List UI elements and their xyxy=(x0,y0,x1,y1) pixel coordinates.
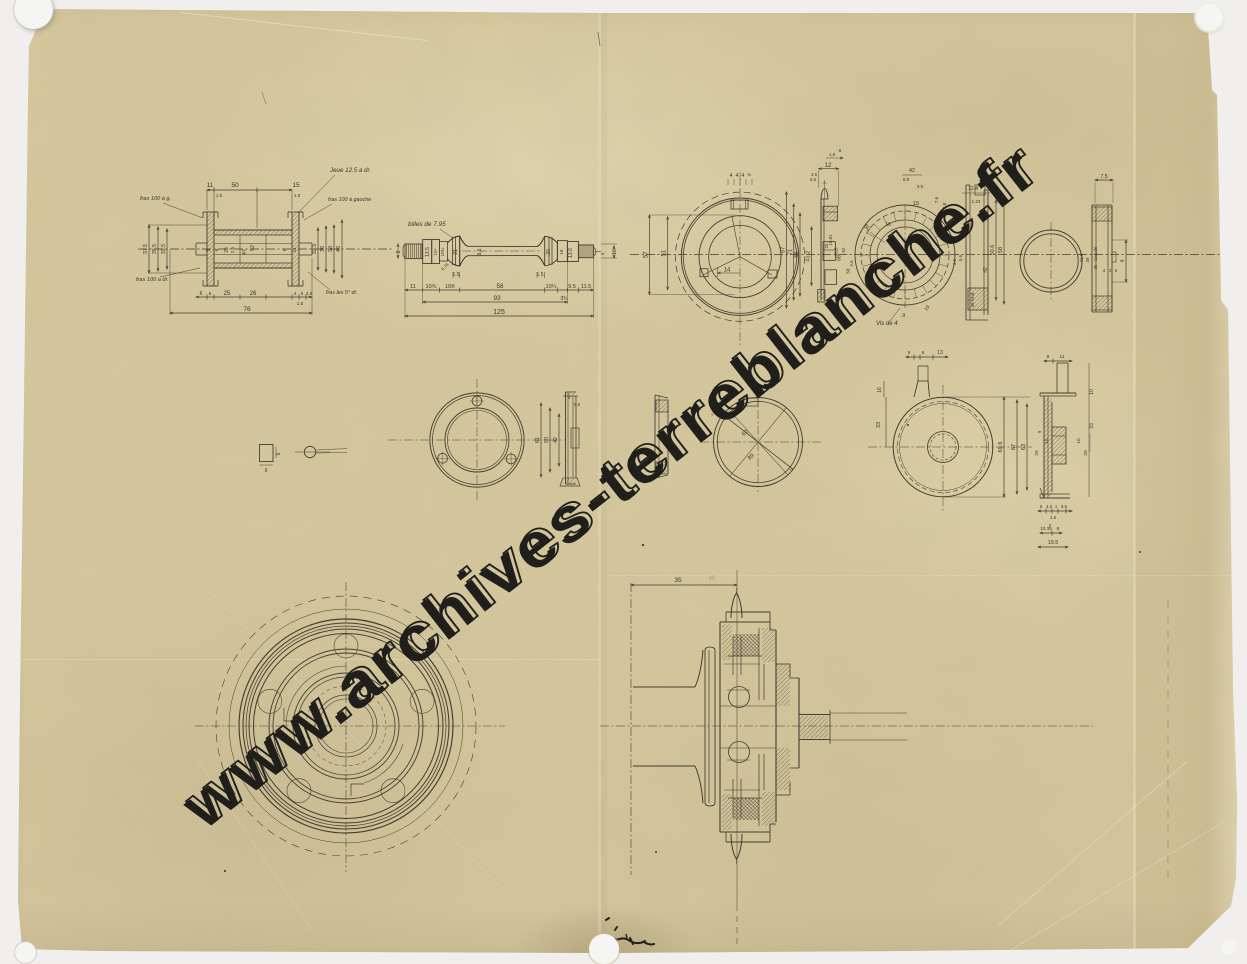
svg-text:9: 9 xyxy=(265,468,268,474)
svg-text:11: 11 xyxy=(292,247,297,252)
svg-text:4: 4 xyxy=(730,173,733,179)
svg-text:1: 1 xyxy=(1055,504,1058,509)
svg-text:10: 10 xyxy=(1089,389,1095,395)
svg-text:16: 16 xyxy=(877,387,883,393)
svg-text:1.5: 1.5 xyxy=(297,301,304,306)
svg-text:4: 4 xyxy=(1120,259,1126,262)
svg-text:5: 5 xyxy=(1115,268,1118,273)
svg-text:42: 42 xyxy=(983,267,989,273)
svg-text:35: 35 xyxy=(674,577,682,584)
svg-text:4.5: 4.5 xyxy=(1046,504,1053,509)
svg-text:33: 33 xyxy=(1089,423,1095,429)
svg-text:1.5: 1.5 xyxy=(216,193,223,198)
svg-text:26: 26 xyxy=(250,291,257,297)
svg-text:87: 87 xyxy=(780,247,786,253)
svg-text:19.5: 19.5 xyxy=(1048,540,1059,546)
svg-text:Jeue 12.5 a dr.: Jeue 12.5 a dr. xyxy=(329,167,371,174)
svg-text:12: 12 xyxy=(825,163,832,169)
svg-text:5.8: 5.8 xyxy=(917,184,923,189)
svg-text:125: 125 xyxy=(493,309,505,316)
svg-text:9: 9 xyxy=(1057,526,1060,532)
svg-text:76: 76 xyxy=(243,306,251,313)
svg-text:58: 58 xyxy=(497,283,504,290)
svg-text:10: 10 xyxy=(612,249,618,255)
svg-text:11: 11 xyxy=(410,284,416,290)
svg-text:18: 18 xyxy=(559,249,564,255)
svg-text:38: 38 xyxy=(328,246,334,252)
svg-text:25: 25 xyxy=(824,243,829,248)
svg-text:15: 15 xyxy=(292,182,300,189)
svg-text:11: 11 xyxy=(207,183,214,189)
svg-text:1,8: 1,8 xyxy=(829,152,836,157)
svg-text:4: 4 xyxy=(294,291,297,296)
svg-text:10¾: 10¾ xyxy=(426,284,437,290)
svg-text:61: 61 xyxy=(535,437,541,443)
svg-text:67: 67 xyxy=(1011,444,1017,450)
svg-text:42: 42 xyxy=(553,437,559,443)
svg-text:4: 4 xyxy=(742,173,745,179)
svg-text:5: 5 xyxy=(209,291,212,296)
svg-text:fras 100 à g.: fras 100 à g. xyxy=(140,196,171,202)
svg-text:¾: ¾ xyxy=(747,172,751,177)
svg-text:50.6: 50.6 xyxy=(990,245,996,256)
svg-text:58: 58 xyxy=(998,247,1004,253)
svg-text:14: 14 xyxy=(724,268,731,274)
svg-text:41.2: 41.2 xyxy=(806,251,812,262)
svg-text:billes de 7.95: billes de 7.95 xyxy=(408,221,446,228)
svg-text:4: 4 xyxy=(1103,268,1106,273)
svg-text:2.5: 2.5 xyxy=(230,246,235,253)
svg-text:9: 9 xyxy=(1037,430,1042,433)
svg-text:57: 57 xyxy=(643,251,649,258)
svg-text:6: 6 xyxy=(1040,504,1043,509)
svg-text:69.6: 69.6 xyxy=(998,442,1004,453)
svg-text:4: 4 xyxy=(600,252,605,255)
svg-text:.9: .9 xyxy=(901,313,905,319)
svg-text:4.5: 4.5 xyxy=(306,291,313,296)
svg-text:41.6: 41.6 xyxy=(1079,253,1084,262)
svg-text:36 - taraudé: 36 - taraudé xyxy=(1093,246,1098,269)
svg-text:52: 52 xyxy=(841,247,846,252)
svg-text:10: 10 xyxy=(1076,438,1081,444)
svg-text:33: 33 xyxy=(876,422,882,428)
svg-text:Vis de 4: Vis de 4 xyxy=(876,321,898,327)
svg-text:47: 47 xyxy=(242,249,248,255)
svg-text:19: 19 xyxy=(923,304,931,312)
svg-text:5: 5 xyxy=(301,291,304,296)
svg-text:10℗: 10℗ xyxy=(445,284,455,290)
svg-text:50: 50 xyxy=(231,182,239,189)
svg-text:42: 42 xyxy=(909,168,915,174)
svg-text:13.5: 13.5 xyxy=(425,247,431,257)
svg-text:5.5: 5.5 xyxy=(1061,504,1068,509)
svg-text:1.5: 1.5 xyxy=(537,272,544,278)
svg-text:56: 56 xyxy=(794,251,800,257)
svg-text:39: 39 xyxy=(1085,257,1090,262)
svg-text:32.5: 32.5 xyxy=(312,244,318,255)
svg-text:6.5: 6.5 xyxy=(810,177,817,182)
svg-text:1.5: 1.5 xyxy=(453,272,460,278)
svg-text:10¾: 10¾ xyxy=(440,247,445,256)
svg-text:5: 5 xyxy=(282,248,287,251)
svg-text:21: 21 xyxy=(453,249,459,255)
svg-text:62: 62 xyxy=(741,429,750,438)
svg-text:38 fond: 38 fond xyxy=(970,292,975,307)
svg-text:9.5: 9.5 xyxy=(568,284,576,290)
svg-text:8: 8 xyxy=(396,250,402,253)
svg-text:89: 89 xyxy=(747,453,756,462)
svg-text:50: 50 xyxy=(862,224,871,233)
svg-text:1.5: 1.5 xyxy=(294,193,301,198)
svg-text:32.5: 32.5 xyxy=(161,244,167,254)
svg-text:6: 6 xyxy=(200,291,203,297)
svg-text:3¾: 3¾ xyxy=(560,296,568,302)
svg-text:48,5: 48,5 xyxy=(834,247,839,256)
svg-text:13.6: 13.6 xyxy=(568,248,574,258)
svg-text:46: 46 xyxy=(336,246,342,252)
svg-text:35.5: 35.5 xyxy=(152,244,158,254)
svg-text:9: 9 xyxy=(1047,354,1050,360)
svg-text:50: 50 xyxy=(544,437,550,443)
svg-text:6.5: 6.5 xyxy=(574,402,581,407)
svg-text:8.8: 8.8 xyxy=(903,177,910,182)
svg-text:20: 20 xyxy=(546,249,552,255)
svg-text:36: 36 xyxy=(320,246,326,252)
svg-text:37.5: 37.5 xyxy=(143,244,149,254)
svg-text:9,1: 9,1 xyxy=(477,248,483,255)
svg-text:fras 100 à gauche: fras 100 à gauche xyxy=(328,197,371,203)
svg-text:6.78: 6.78 xyxy=(440,262,450,272)
svg-text:20: 20 xyxy=(1083,450,1089,456)
svg-text:4: 4 xyxy=(736,173,739,179)
svg-text:8: 8 xyxy=(839,148,842,154)
svg-text:52: 52 xyxy=(250,245,256,251)
svg-text:71: 71 xyxy=(788,249,794,255)
svg-text:6: 6 xyxy=(922,350,925,356)
svg-text:25: 25 xyxy=(224,291,231,297)
svg-text:10: 10 xyxy=(1044,438,1049,443)
svg-text:7.5: 7.5 xyxy=(1100,174,1107,180)
svg-text:10¼: 10¼ xyxy=(546,284,557,290)
svg-text:20: 20 xyxy=(1034,450,1039,456)
svg-text:40: 40 xyxy=(709,576,716,582)
svg-text:13: 13 xyxy=(937,350,943,356)
svg-text:11.5: 11.5 xyxy=(581,284,591,290)
svg-text:11: 11 xyxy=(1060,354,1065,360)
svg-text:10.35: 10.35 xyxy=(1040,526,1052,531)
svg-text:2.5: 2.5 xyxy=(1050,515,1057,520)
svg-text:fras les 5° dr.: fras les 5° dr. xyxy=(326,290,358,296)
svg-text:3: 3 xyxy=(1109,268,1112,273)
svg-text:63: 63 xyxy=(1021,444,1027,450)
svg-text:5: 5 xyxy=(276,452,282,455)
svg-text:51: 51 xyxy=(662,249,668,256)
svg-text:5: 5 xyxy=(908,350,911,356)
svg-text:2.5: 2.5 xyxy=(811,172,817,177)
svg-text:10⁶: 10⁶ xyxy=(433,248,438,255)
svg-text:9: 9 xyxy=(206,248,212,251)
svg-text:93: 93 xyxy=(493,295,501,302)
svg-text:fras 100 a dr.: fras 100 a dr. xyxy=(136,277,169,283)
svg-text:6: 6 xyxy=(214,248,219,251)
